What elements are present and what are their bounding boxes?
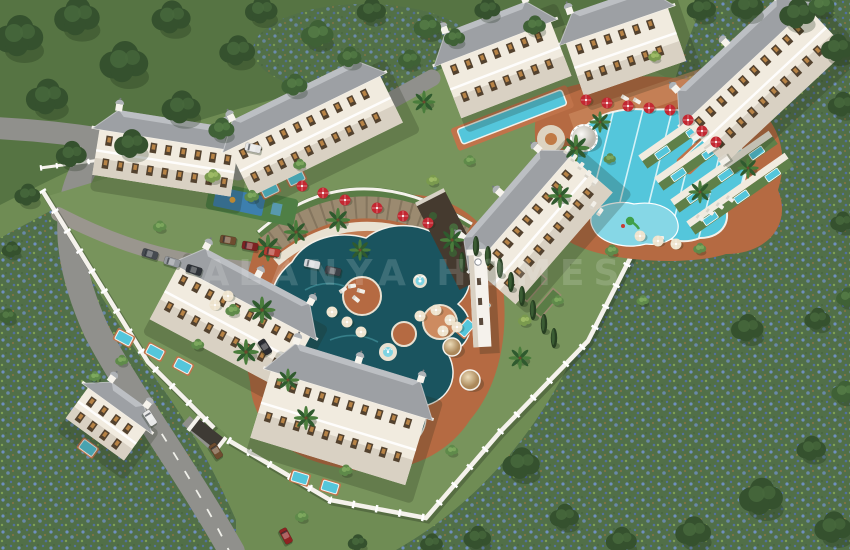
residential-complex-render: ALANYA HOMES (0, 0, 850, 550)
palm-tree (326, 208, 350, 232)
palm-tree (284, 220, 308, 244)
palm-tree (548, 184, 572, 208)
palm-tree (509, 347, 532, 370)
palm-tree (233, 339, 259, 365)
palm-tree (589, 111, 611, 133)
watermark: ALANYA HOMES (202, 253, 629, 294)
palm-tree (440, 228, 464, 252)
palm-tree (737, 157, 759, 179)
palm-tree (689, 181, 712, 204)
aerial-render-stage: ALANYA HOMES (0, 0, 850, 550)
palm-tree (413, 91, 436, 114)
palm-tree (249, 297, 276, 324)
palm-tree (294, 406, 318, 430)
fountain-small (383, 347, 393, 357)
palm-tree (277, 369, 300, 392)
